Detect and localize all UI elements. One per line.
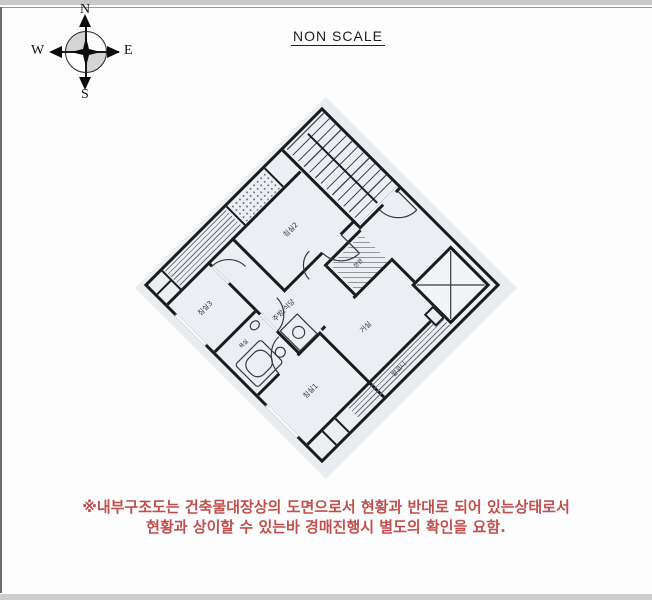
door-arc-bedroom3 — [212, 250, 246, 284]
plan-fixtures — [148, 111, 496, 459]
door-arc-unit-entry — [380, 192, 417, 229]
scale-note: NON SCALE — [0, 28, 652, 44]
document-page: N S W E NON SCALE — [0, 0, 652, 600]
compass-rose: N S W E — [23, 6, 113, 98]
disclaimer-note: ※내부구조도는 건축물대장상의 도면으로서 현황과 반대로 되어 있는상태로서 … — [0, 497, 652, 537]
top-gray-strip — [0, 0, 652, 5]
compass-label-north: N — [80, 2, 90, 18]
compass-label-east: E — [124, 43, 133, 59]
compass-label-west: W — [31, 43, 44, 59]
elevator-x-icon — [417, 251, 485, 319]
west-arrow-icon — [49, 46, 62, 58]
kitchen-counter — [280, 314, 317, 351]
disclaimer-line2: 현황과 상이할 수 있는바 경매진행시 별도의 확인을 요함. — [0, 517, 652, 537]
east-arrow-icon — [107, 46, 120, 58]
kitchen-sink — [290, 324, 307, 341]
scale-note-text: NON SCALE — [291, 28, 385, 46]
compass-label-south: S — [81, 87, 89, 103]
toilet — [248, 319, 261, 332]
disclaimer-line1: ※내부구조도는 건축물대장상의 도면으로서 현황과 반대로 되어 있는상태로서 — [0, 497, 652, 517]
floor-plan: 침실2 주방/식당 거실 침실3 욕실 침실1 발코니 현관 — [144, 107, 500, 463]
bathroom-sink — [273, 345, 287, 359]
door-arc-foyer — [295, 251, 323, 279]
bottom-gray-strip — [0, 594, 652, 600]
